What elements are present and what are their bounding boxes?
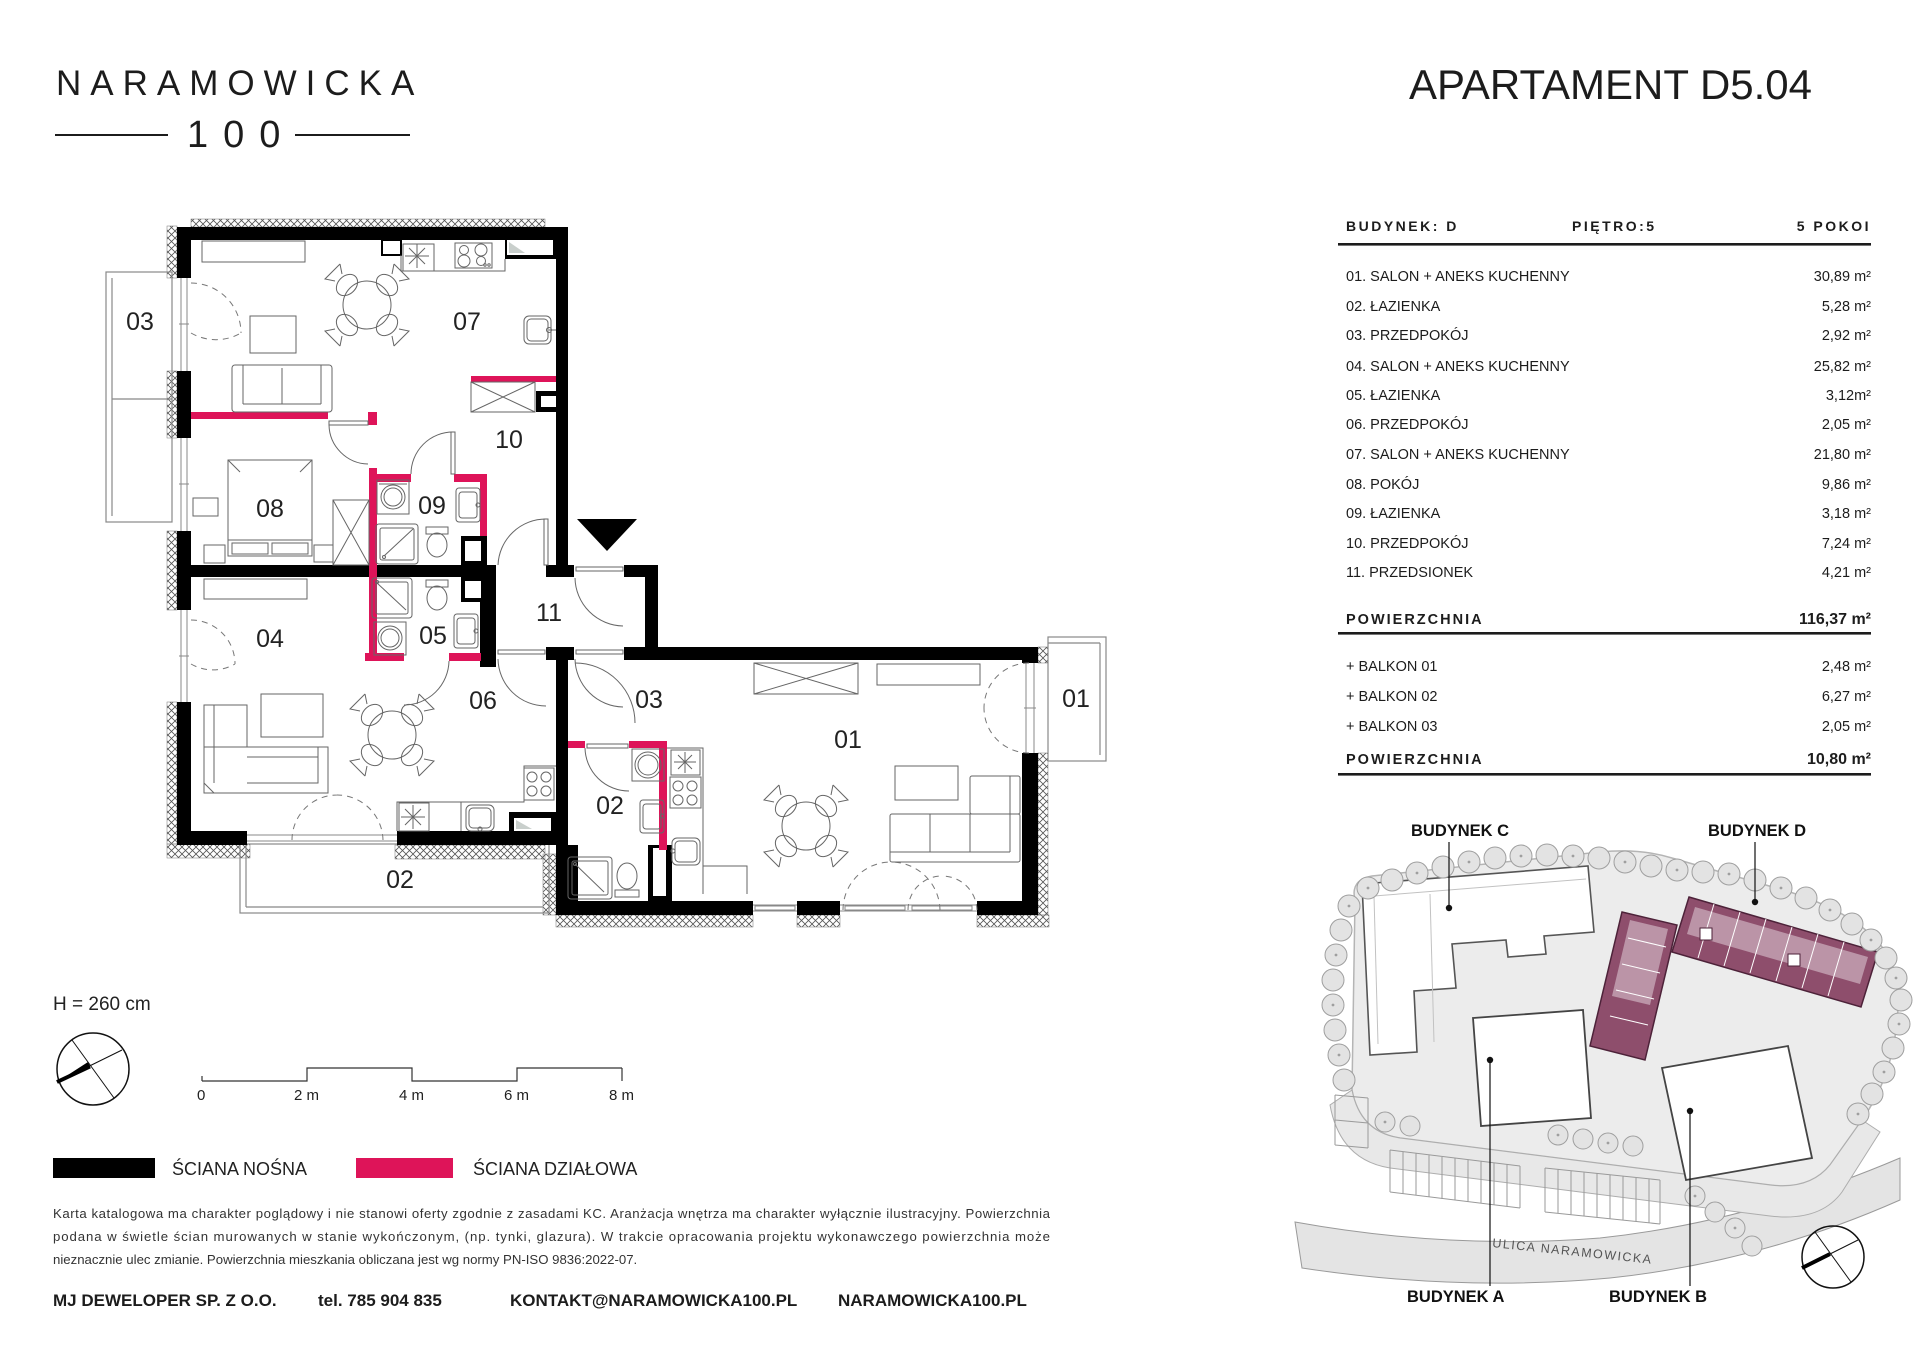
svg-text:08. POKÓJ: 08. POKÓJ — [1346, 476, 1419, 493]
svg-text:11. PRZEDSIONEK: 11. PRZEDSIONEK — [1346, 565, 1473, 581]
svg-text:01: 01 — [1062, 685, 1090, 713]
svg-text:APARTAMENT D5.04: APARTAMENT D5.04 — [1409, 61, 1812, 108]
svg-text:2,05 m²: 2,05 m² — [1822, 719, 1871, 735]
svg-text:NARAMOWICKA: NARAMOWICKA — [56, 64, 423, 103]
svg-text:2,48 m²: 2,48 m² — [1822, 659, 1871, 675]
svg-text:6 m: 6 m — [504, 1087, 529, 1104]
svg-text:BUDYNEK: D: BUDYNEK: D — [1346, 218, 1459, 234]
svg-text:5 POKOI: 5 POKOI — [1797, 218, 1871, 234]
svg-text:BUDYNEK A: BUDYNEK A — [1407, 1288, 1505, 1306]
svg-text:0: 0 — [197, 1087, 205, 1104]
svg-text:4,21 m²: 4,21 m² — [1822, 565, 1871, 581]
svg-text:07: 07 — [453, 308, 481, 336]
svg-text:07. SALON + ANEKS KUCHENNY: 07. SALON + ANEKS KUCHENNY — [1346, 447, 1570, 463]
svg-text:NARAMOWICKA100.PL: NARAMOWICKA100.PL — [838, 1291, 1027, 1310]
svg-text:KONTAKT@NARAMOWICKA100.PL: KONTAKT@NARAMOWICKA100.PL — [510, 1291, 797, 1310]
svg-text:6,27 m²: 6,27 m² — [1822, 689, 1871, 705]
svg-text:4 m: 4 m — [399, 1087, 424, 1104]
svg-text:tel. 785 904 835: tel. 785 904 835 — [318, 1291, 442, 1310]
svg-text:06. PRZEDPOKÓJ: 06. PRZEDPOKÓJ — [1346, 416, 1468, 433]
svg-text:ŚCIANA NOŚNA: ŚCIANA NOŚNA — [172, 1158, 307, 1179]
svg-text:03. PRZEDPOKÓJ: 03. PRZEDPOKÓJ — [1346, 327, 1468, 344]
svg-text:8 m: 8 m — [609, 1087, 634, 1104]
svg-text:02: 02 — [596, 792, 624, 820]
svg-text:9,86 m²: 9,86 m² — [1822, 477, 1871, 493]
svg-text:2 m: 2 m — [294, 1087, 319, 1104]
svg-text:02: 02 — [386, 866, 414, 894]
svg-text:Karta katalogowa ma charakter: Karta katalogowa ma charakter poglądowy … — [53, 1206, 1051, 1221]
svg-text:10: 10 — [495, 426, 523, 454]
svg-text:05. ŁAZIENKA: 05. ŁAZIENKA — [1346, 388, 1441, 404]
svg-text:podana w świetle ścian murowan: podana w świetle ścian murowanych w stan… — [53, 1229, 1050, 1244]
svg-text:09: 09 — [418, 492, 446, 520]
svg-text:30,89 m²: 30,89 m² — [1814, 269, 1871, 285]
svg-text:3,12m²: 3,12m² — [1826, 388, 1871, 404]
svg-text:01. SALON + ANEKS KUCHENNY: 01. SALON + ANEKS KUCHENNY — [1346, 269, 1570, 285]
svg-text:2,92 m²: 2,92 m² — [1822, 328, 1871, 344]
svg-text:04. SALON + ANEKS KUCHENNY: 04. SALON + ANEKS KUCHENNY — [1346, 359, 1570, 375]
svg-text:03: 03 — [126, 308, 154, 336]
svg-text:+ BALKON 02: + BALKON 02 — [1346, 689, 1437, 705]
svg-text:09. ŁAZIENKA: 09. ŁAZIENKA — [1346, 506, 1441, 522]
svg-text:POWIERZCHNIA: POWIERZCHNIA — [1346, 752, 1484, 768]
svg-text:+ BALKON 03: + BALKON 03 — [1346, 719, 1437, 735]
svg-text:05: 05 — [419, 622, 447, 650]
svg-text:BUDYNEK C: BUDYNEK C — [1411, 822, 1509, 840]
svg-text:02. ŁAZIENKA: 02. ŁAZIENKA — [1346, 299, 1441, 315]
svg-text:3,18 m²: 3,18 m² — [1822, 506, 1871, 522]
svg-text:08: 08 — [256, 495, 284, 523]
svg-text:03: 03 — [635, 686, 663, 714]
svg-text:POWIERZCHNIA: POWIERZCHNIA — [1346, 612, 1484, 628]
svg-text:7,24 m²: 7,24 m² — [1822, 536, 1871, 552]
svg-text:2,05 m²: 2,05 m² — [1822, 417, 1871, 433]
svg-text:100: 100 — [187, 114, 295, 156]
svg-text:04: 04 — [256, 625, 284, 653]
svg-text:+ BALKON 01: + BALKON 01 — [1346, 659, 1437, 675]
svg-text:H = 260 cm: H = 260 cm — [53, 994, 151, 1015]
svg-text:11: 11 — [536, 599, 562, 627]
svg-text:06: 06 — [469, 687, 497, 715]
svg-text:10,80 m²: 10,80 m² — [1807, 751, 1871, 768]
svg-text:116,37 m²: 116,37 m² — [1799, 611, 1871, 628]
svg-text:BUDYNEK B: BUDYNEK B — [1609, 1288, 1707, 1306]
svg-text:10. PRZEDPOKÓJ: 10. PRZEDPOKÓJ — [1346, 535, 1468, 552]
svg-text:ŚCIANA DZIAŁOWA: ŚCIANA DZIAŁOWA — [473, 1158, 637, 1179]
svg-text:BUDYNEK D: BUDYNEK D — [1708, 822, 1806, 840]
svg-text:21,80 m²: 21,80 m² — [1814, 447, 1871, 463]
svg-text:01: 01 — [834, 726, 862, 754]
svg-text:5,28 m²: 5,28 m² — [1822, 299, 1871, 315]
svg-text:MJ DEWELOPER SP. Z O.O.: MJ DEWELOPER SP. Z O.O. — [53, 1291, 277, 1310]
svg-text:nieznacznie ulec zmianie. Powi: nieznacznie ulec zmianie. Powierzchnia m… — [53, 1252, 637, 1267]
svg-text:25,82 m²: 25,82 m² — [1814, 359, 1871, 375]
svg-text:PIĘTRO:5: PIĘTRO:5 — [1572, 218, 1657, 234]
